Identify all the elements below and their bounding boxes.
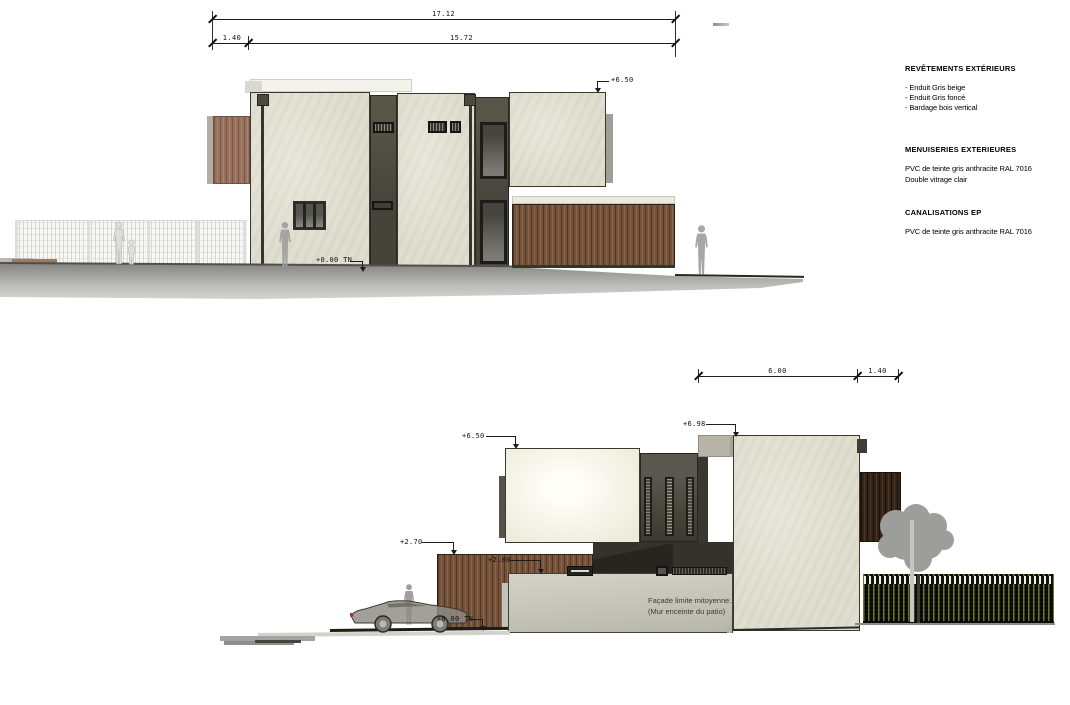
leader-line [706,424,735,425]
ground-line [855,623,1055,625]
facade-block-white [505,448,640,543]
tree-trunk [910,520,914,622]
slot-window [372,201,393,210]
leader-arrow [451,550,457,555]
legend-item: - Enduit Gris foncé [905,93,965,102]
level-label-ground: +0.00 TN [437,615,473,623]
leader-arrow [538,569,544,574]
wood-fence [512,204,675,267]
slot-window-vertical [644,477,652,536]
leader-line [509,560,540,561]
leader-arrow [513,444,519,449]
fence-post [243,220,246,265]
window-mullion [303,203,306,228]
ground-patch-dark [255,640,301,643]
vent-slot-line [571,570,589,572]
level-label-roof-left: +6.50 [462,432,485,440]
legend-item: - Enduit Gris beige [905,83,965,92]
dark-fence-top-rail [864,576,1053,584]
window-three-pane [293,201,326,230]
side-return-tab [606,114,613,183]
legend-section-title: CANALISATIONS EP [905,208,981,217]
level-label-fence: +2.70 [400,538,423,546]
fence-cap-band [512,196,675,204]
ground [0,262,806,302]
fence-post [196,220,199,265]
level-label-roof: +6.50 [611,76,634,84]
legend-item: PVC de teinte gris anthracite RAL 7016 [905,227,1032,236]
legend-item: PVC de teinte gris anthracite RAL 7016 [905,164,1032,173]
dark-cladding-strip [370,95,397,266]
leader-arrow [595,88,601,93]
leader-arrow [480,626,486,631]
level-label-roof-top: +6.98 [683,420,706,428]
slot-window-vertical [665,477,674,536]
person-silhouette [111,221,127,266]
legend-item: - Bardage bois vertical [905,103,977,112]
leader-line [486,436,515,437]
facade-block-right [509,92,606,187]
person-silhouette [693,223,710,278]
downspout-hopper [257,94,269,106]
leader-arrow [360,267,366,272]
dim-line-segments [212,43,675,44]
legend-section-title: REVÊTEMENTS EXTÉRIEURS [905,64,1016,73]
tall-window-lower [480,200,507,264]
dim-line [698,376,898,377]
patio-wall-note-line1: Façade limite mitoyenne. [648,596,731,605]
level-label-ground: +0.00 TN [316,256,352,264]
dim-line-total [212,19,675,20]
dim-label-seg-right: 15.72 [248,34,675,42]
elevation-bottom: 6.00 1.40 Façade limite mitoyenne. (Mur … [0,355,1070,705]
leader-line [597,81,609,82]
vent-window [373,122,394,133]
stray-mark [713,23,729,26]
wood-panel-left [213,116,250,184]
dim-label-width: 6.00 [698,367,857,375]
child-silhouette [126,239,137,266]
facade-block-middle [397,93,475,266]
vent-slot-small [656,566,668,576]
level-label-wall: +2.00 [488,556,511,564]
materials-legend: REVÊTEMENTS EXTÉRIEURS - Enduit Gris bei… [905,0,1070,250]
person-silhouette [277,221,293,269]
legend-item: Double vitrage clair [905,175,967,184]
downspout-pipe [469,95,472,267]
facade-block-right-large [733,435,860,631]
facade-block-left [250,92,370,267]
dark-edge-strip [698,457,708,542]
vent-window [428,121,447,133]
window-mullion [313,203,316,228]
leader-line [350,261,362,262]
tall-window-upper [480,122,507,179]
dim-label-total: 17.12 [212,10,675,18]
roof-corner-block [857,439,867,453]
roof-parapet-band [250,79,412,92]
downspout-hopper [464,94,476,106]
fence-post [147,220,150,265]
slot-window-vertical [686,477,694,536]
vent-slot-wide [672,567,727,575]
fence-post [87,220,90,265]
patio-wall-note-line2: (Mur enceinte du patio) [648,607,725,616]
dim-label-setback: 1.40 [857,367,898,375]
leader-arrow [733,432,739,437]
downspout-pipe [261,95,264,267]
vent-window-small [450,121,461,133]
leader-line [422,542,453,543]
fence-panel-gap [917,574,920,623]
legend-section-title: MENUISERIES EXTERIEURES [905,145,1016,154]
ground-edge-line [512,265,675,268]
drawing-sheet: 17.12 1.40 15.72 [0,0,1070,705]
leader-line [470,619,482,620]
